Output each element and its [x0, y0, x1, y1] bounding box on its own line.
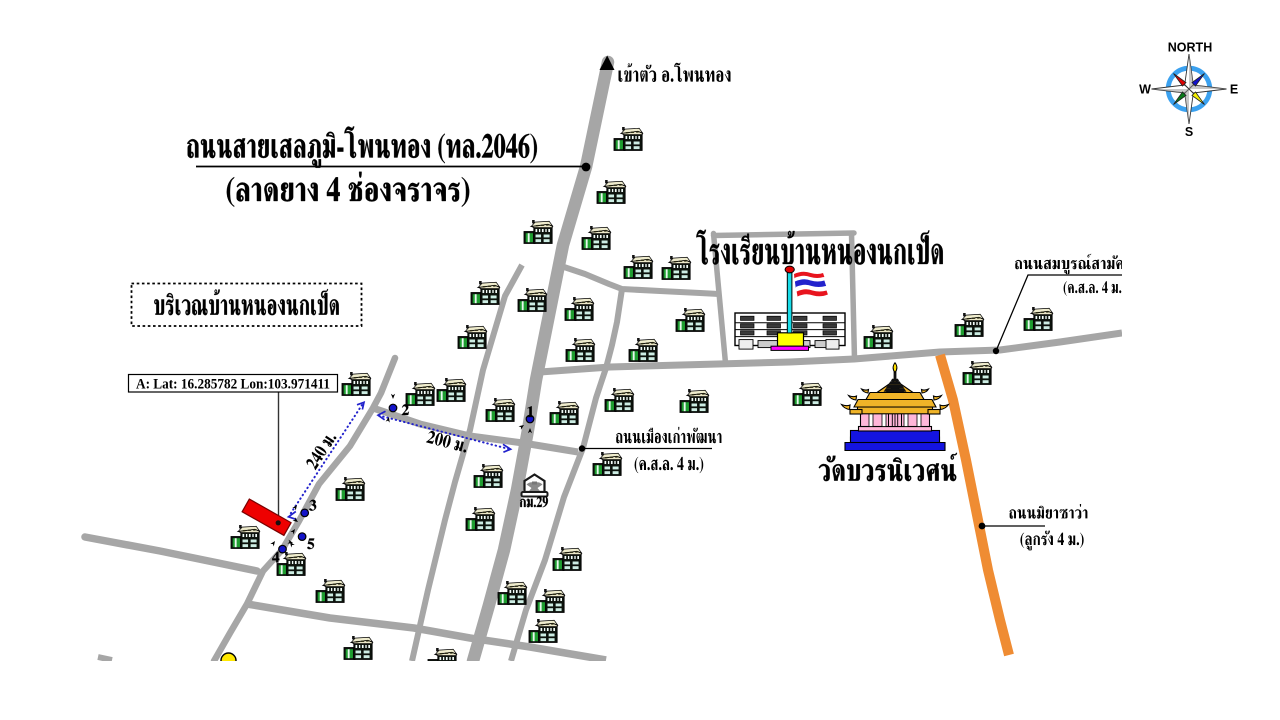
svg-text:E: E	[1230, 82, 1238, 96]
svg-text:W: W	[1139, 82, 1151, 96]
svg-text:S: S	[1185, 125, 1193, 139]
svg-text:A: Lat: 16.285782 Lon:103.971: A: Lat: 16.285782 Lon:103.971411	[136, 377, 330, 393]
svg-text:NORTH: NORTH	[1168, 41, 1212, 55]
